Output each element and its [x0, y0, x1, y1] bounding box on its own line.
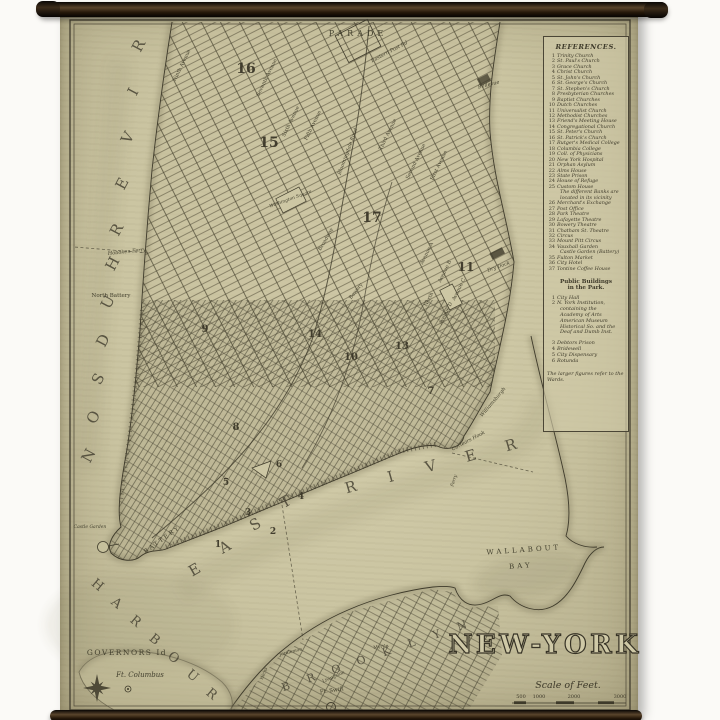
scale-tick: 3000 — [614, 694, 627, 700]
manhattan-street-grid — [105, 22, 525, 565]
ward-number: 6 — [276, 460, 282, 470]
park-buildings-list: 1City Hall2N. York Institution,containin… — [547, 296, 625, 365]
map-label: R — [128, 36, 150, 55]
map-label: BAY — [509, 561, 533, 571]
park-building-item: 6Rotunda — [547, 359, 625, 365]
reference-number: 6 — [547, 359, 555, 365]
references-panel: REFERENCES. 1Trinity Church2St. Paul's C… — [543, 36, 629, 432]
ward-number: 15 — [259, 135, 278, 151]
ward-number: 1 — [215, 540, 221, 550]
ward-number: 13 — [395, 341, 409, 352]
ward-number: 8 — [233, 422, 240, 433]
scale-bar: Scale of Feet. 500 1000 2000 3000 — [512, 680, 626, 704]
ward-number: 7 — [428, 386, 435, 397]
ward-number: 17 — [362, 210, 381, 226]
map-label: GOVERNORS Id — [87, 648, 167, 657]
ward-number: 4 — [298, 492, 304, 502]
reference-item: 37Tontine Coffee House — [547, 267, 625, 272]
ward-number: 11 — [458, 260, 475, 274]
top-hanging-rod — [38, 2, 668, 17]
map-label: Castle Garden — [74, 524, 107, 530]
castle-garden-islet — [98, 542, 109, 553]
ward-number: 3 — [245, 508, 251, 518]
map-label: PARADE — [329, 29, 387, 38]
reference-label: Rotunda — [557, 359, 625, 365]
bottom-hanging-rod — [50, 710, 642, 720]
reference-label: Tontine Coffee House — [557, 267, 625, 272]
ward-number: 9 — [202, 324, 209, 335]
map-label: R — [343, 477, 359, 498]
park-heading-line: in the Park. — [547, 285, 625, 291]
map-title: NEW-YORK — [449, 630, 642, 660]
ward-number: 16 — [236, 61, 255, 77]
scale-tick: 500 — [516, 694, 526, 700]
ward-number: 10 — [344, 352, 358, 363]
references-title: REFERENCES. — [547, 43, 625, 51]
scale-tick: 2000 — [568, 694, 581, 700]
scale-tick: 1000 — [533, 694, 546, 700]
top-rod-right-cap — [644, 2, 668, 18]
references-footnote: The larger figures refer to the Wards. — [547, 372, 625, 384]
reference-label: Deaf and Dumb Inst. — [557, 330, 625, 336]
map-label: Ft. Columbus — [115, 671, 164, 679]
hanging-map-photo: PARADEEastern Post RdBellevueNinth Avenu… — [0, 0, 720, 720]
ward-number: 2 — [270, 527, 276, 537]
references-list: 1Trinity Church2St. Paul's Church3Grace … — [547, 54, 625, 272]
park-building-item: Deaf and Dumb Inst. — [547, 330, 625, 336]
top-rod-left-cap — [36, 1, 60, 17]
ward-number: 14 — [308, 329, 322, 340]
ward-number: 5 — [223, 478, 229, 488]
reference-number: 37 — [547, 267, 555, 272]
scale-label: Scale of Feet. — [535, 680, 601, 691]
reference-number — [547, 330, 555, 336]
